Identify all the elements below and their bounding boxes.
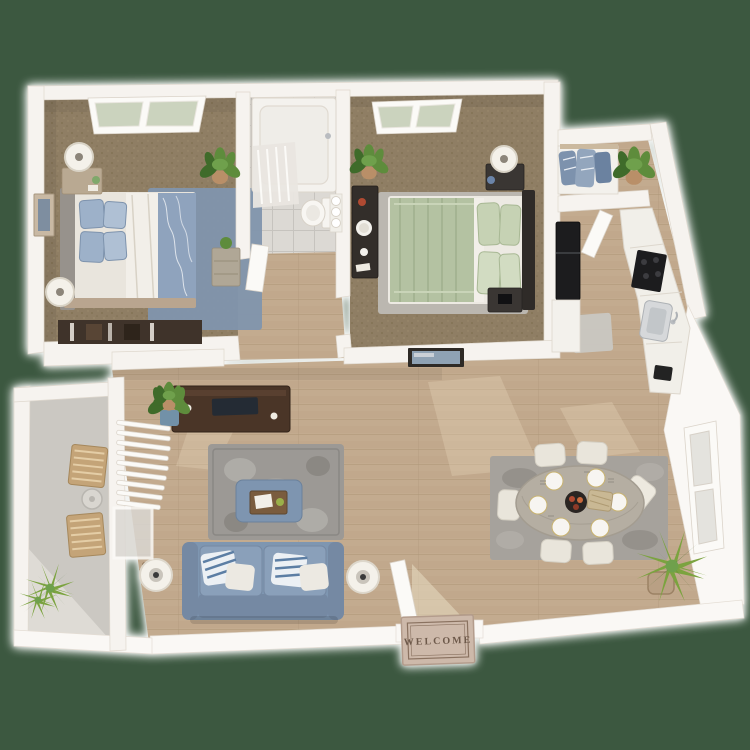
throw-pillow-white [299, 563, 330, 592]
sofa [182, 542, 344, 620]
patio-side-table [82, 489, 102, 509]
entry-pillows [558, 148, 612, 187]
coat-rod [560, 144, 618, 149]
bedroom1-closet [58, 320, 202, 344]
bed1-duvet [126, 193, 160, 307]
tub-faucet-icon [325, 133, 331, 139]
bed1-floor-lamp [46, 278, 74, 306]
floor-plan-page: WELCOME [0, 0, 750, 750]
patio-chair [66, 513, 106, 558]
bed2-headboard [522, 190, 535, 310]
throw-pillow-white [225, 563, 256, 592]
floor-lamp-left [140, 559, 172, 591]
toaster [653, 365, 673, 381]
patio-left-wall [14, 386, 30, 644]
floor-lamp-right [347, 561, 379, 593]
bed1-rail [64, 298, 196, 308]
bed1-blanket [158, 193, 196, 307]
living-top-wall-left [112, 349, 224, 370]
door-jamb [474, 620, 483, 638]
sofa-shadow [190, 616, 338, 624]
sliding-glass-door [114, 508, 152, 558]
welcome-mat: WELCOME [401, 615, 475, 665]
bed2-blanket [390, 198, 482, 302]
ottoman-coffee-table [236, 480, 302, 522]
towel-shelf [330, 194, 342, 232]
bed2-nightstand-bottom [488, 288, 522, 312]
tv [212, 397, 259, 416]
kitchen-cabinet [552, 300, 580, 352]
refrigerator [556, 222, 580, 300]
sofa-backrest [198, 594, 328, 618]
floor-plan-render: WELCOME [0, 0, 750, 750]
hallway-art [408, 348, 464, 367]
wall-shadow [112, 368, 442, 380]
patio-chair [68, 444, 108, 488]
wall-art [34, 194, 54, 236]
bed2-console [352, 186, 378, 278]
bedroom2-window [372, 99, 462, 134]
bedroom1-window [88, 96, 206, 134]
